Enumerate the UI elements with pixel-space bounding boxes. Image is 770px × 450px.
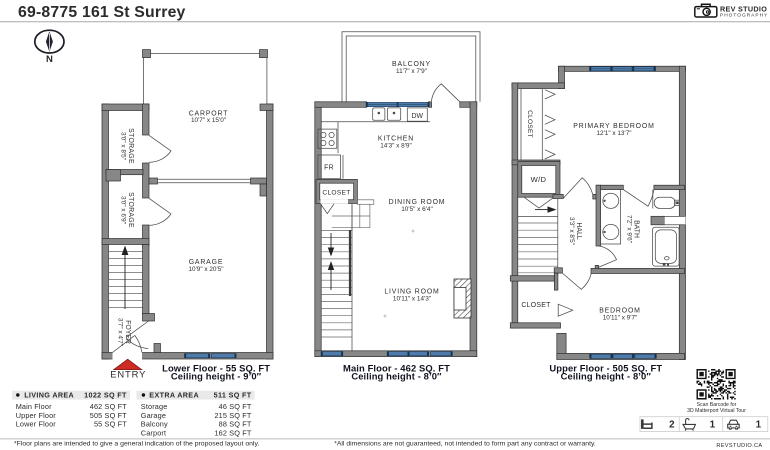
svg-text:2: 2 xyxy=(669,420,675,431)
svg-text:*All dimensions are not guaran: *All dimensions are not guaranteed, not … xyxy=(334,440,596,447)
svg-text:GARAGE: GARAGE xyxy=(189,259,224,266)
svg-text:10'9" x 20'5": 10'9" x 20'5" xyxy=(188,266,223,273)
svg-text:505 SQ FT: 505 SQ FT xyxy=(90,411,127,420)
svg-text:10'7" x 15'0": 10'7" x 15'0" xyxy=(191,117,226,124)
svg-text:10'5" x 6'4": 10'5" x 6'4" xyxy=(401,206,433,213)
svg-text:3'0" x 8'5": 3'0" x 8'5" xyxy=(120,132,127,160)
svg-text:N: N xyxy=(46,54,53,65)
svg-text:88 SQ FT: 88 SQ FT xyxy=(219,420,252,429)
svg-text:Lower Floor: Lower Floor xyxy=(16,420,57,429)
svg-text:10'11" x 14'3": 10'11" x 14'3" xyxy=(393,295,431,302)
svg-text:3'0" x 6'9": 3'0" x 6'9" xyxy=(120,196,127,224)
svg-text:STORAGE: STORAGE xyxy=(127,128,134,164)
svg-text:46 SQ FT: 46 SQ FT xyxy=(219,402,252,411)
svg-text:CLOSET: CLOSET xyxy=(521,302,551,309)
svg-text:HALL: HALL xyxy=(575,222,582,239)
svg-text:55 SQ FT: 55 SQ FT xyxy=(94,420,127,429)
svg-text:ENTRY: ENTRY xyxy=(110,369,146,380)
svg-text:Scan Barcode for: Scan Barcode for xyxy=(697,402,737,408)
svg-text:69-8775 161 St Surrey: 69-8775 161 St Surrey xyxy=(18,4,186,21)
svg-text:3'3" x 8'5": 3'3" x 8'5" xyxy=(568,217,575,245)
svg-text:215 SQ FT: 215 SQ FT xyxy=(214,411,251,420)
svg-text:REV STUDIO: REV STUDIO xyxy=(720,4,767,13)
svg-text:W/D: W/D xyxy=(531,175,547,184)
svg-text:STORAGE: STORAGE xyxy=(127,192,134,228)
svg-text:14'3" x 8'9": 14'3" x 8'9" xyxy=(380,143,412,150)
svg-text:Garage: Garage xyxy=(141,411,166,420)
svg-text:Balcony: Balcony xyxy=(141,420,168,429)
svg-text:CLOSET: CLOSET xyxy=(322,189,350,196)
svg-text:1022 SQ FT: 1022 SQ FT xyxy=(84,390,127,399)
svg-text:Ceiling height - 8’0″: Ceiling height - 8’0″ xyxy=(351,371,442,382)
svg-text:Ceiling height - 8’0″: Ceiling height - 8’0″ xyxy=(561,371,652,382)
svg-text:7'2" x 9'6": 7'2" x 9'6" xyxy=(626,215,633,243)
svg-text:DW: DW xyxy=(412,113,424,120)
svg-text:1: 1 xyxy=(756,420,762,431)
svg-text:KITCHEN: KITCHEN xyxy=(378,136,414,143)
svg-text:10'11" x 9'7": 10'11" x 9'7" xyxy=(603,314,638,321)
svg-text:462 SQ FT: 462 SQ FT xyxy=(90,402,127,411)
svg-text:Storage: Storage xyxy=(141,402,168,411)
svg-text:12'1" x 13'7": 12'1" x 13'7" xyxy=(596,130,631,137)
svg-text:DINING ROOM: DINING ROOM xyxy=(389,199,446,206)
svg-text:11'7" x 7'9": 11'7" x 7'9" xyxy=(396,68,427,75)
svg-text:3'7" x 4'7": 3'7" x 4'7" xyxy=(117,318,124,346)
svg-text:LIVING AREA: LIVING AREA xyxy=(24,390,74,399)
svg-text:3D Matterport Virtual Tour: 3D Matterport Virtual Tour xyxy=(687,408,746,414)
svg-text:PHOTOGRAPHY: PHOTOGRAPHY xyxy=(720,13,768,19)
svg-text:Upper Floor: Upper Floor xyxy=(16,411,57,420)
svg-text:1: 1 xyxy=(710,420,716,431)
svg-text:162 SQ FT: 162 SQ FT xyxy=(214,428,251,437)
svg-text:EXTRA AREA: EXTRA AREA xyxy=(149,390,199,399)
svg-text:PRIMARY BEDROOM: PRIMARY BEDROOM xyxy=(573,123,654,130)
svg-text:LIVING ROOM: LIVING ROOM xyxy=(384,288,439,295)
svg-text:Ceiling height - 9’0″: Ceiling height - 9’0″ xyxy=(171,371,262,382)
svg-text:BEDROOM: BEDROOM xyxy=(599,307,641,314)
svg-text:CLOSET: CLOSET xyxy=(526,110,533,138)
svg-text:REVSTUDIO.CA: REVSTUDIO.CA xyxy=(716,443,762,449)
svg-text:BATH: BATH xyxy=(633,220,640,238)
svg-text:Main Floor: Main Floor xyxy=(16,402,52,411)
svg-text:FR: FR xyxy=(324,165,334,172)
svg-text:*Floor plans are intended to g: *Floor plans are intended to give a gene… xyxy=(14,440,259,447)
svg-text:511 SQ FT: 511 SQ FT xyxy=(214,390,252,399)
svg-text:Carport: Carport xyxy=(141,428,166,437)
svg-text:FOYER: FOYER xyxy=(124,320,131,344)
